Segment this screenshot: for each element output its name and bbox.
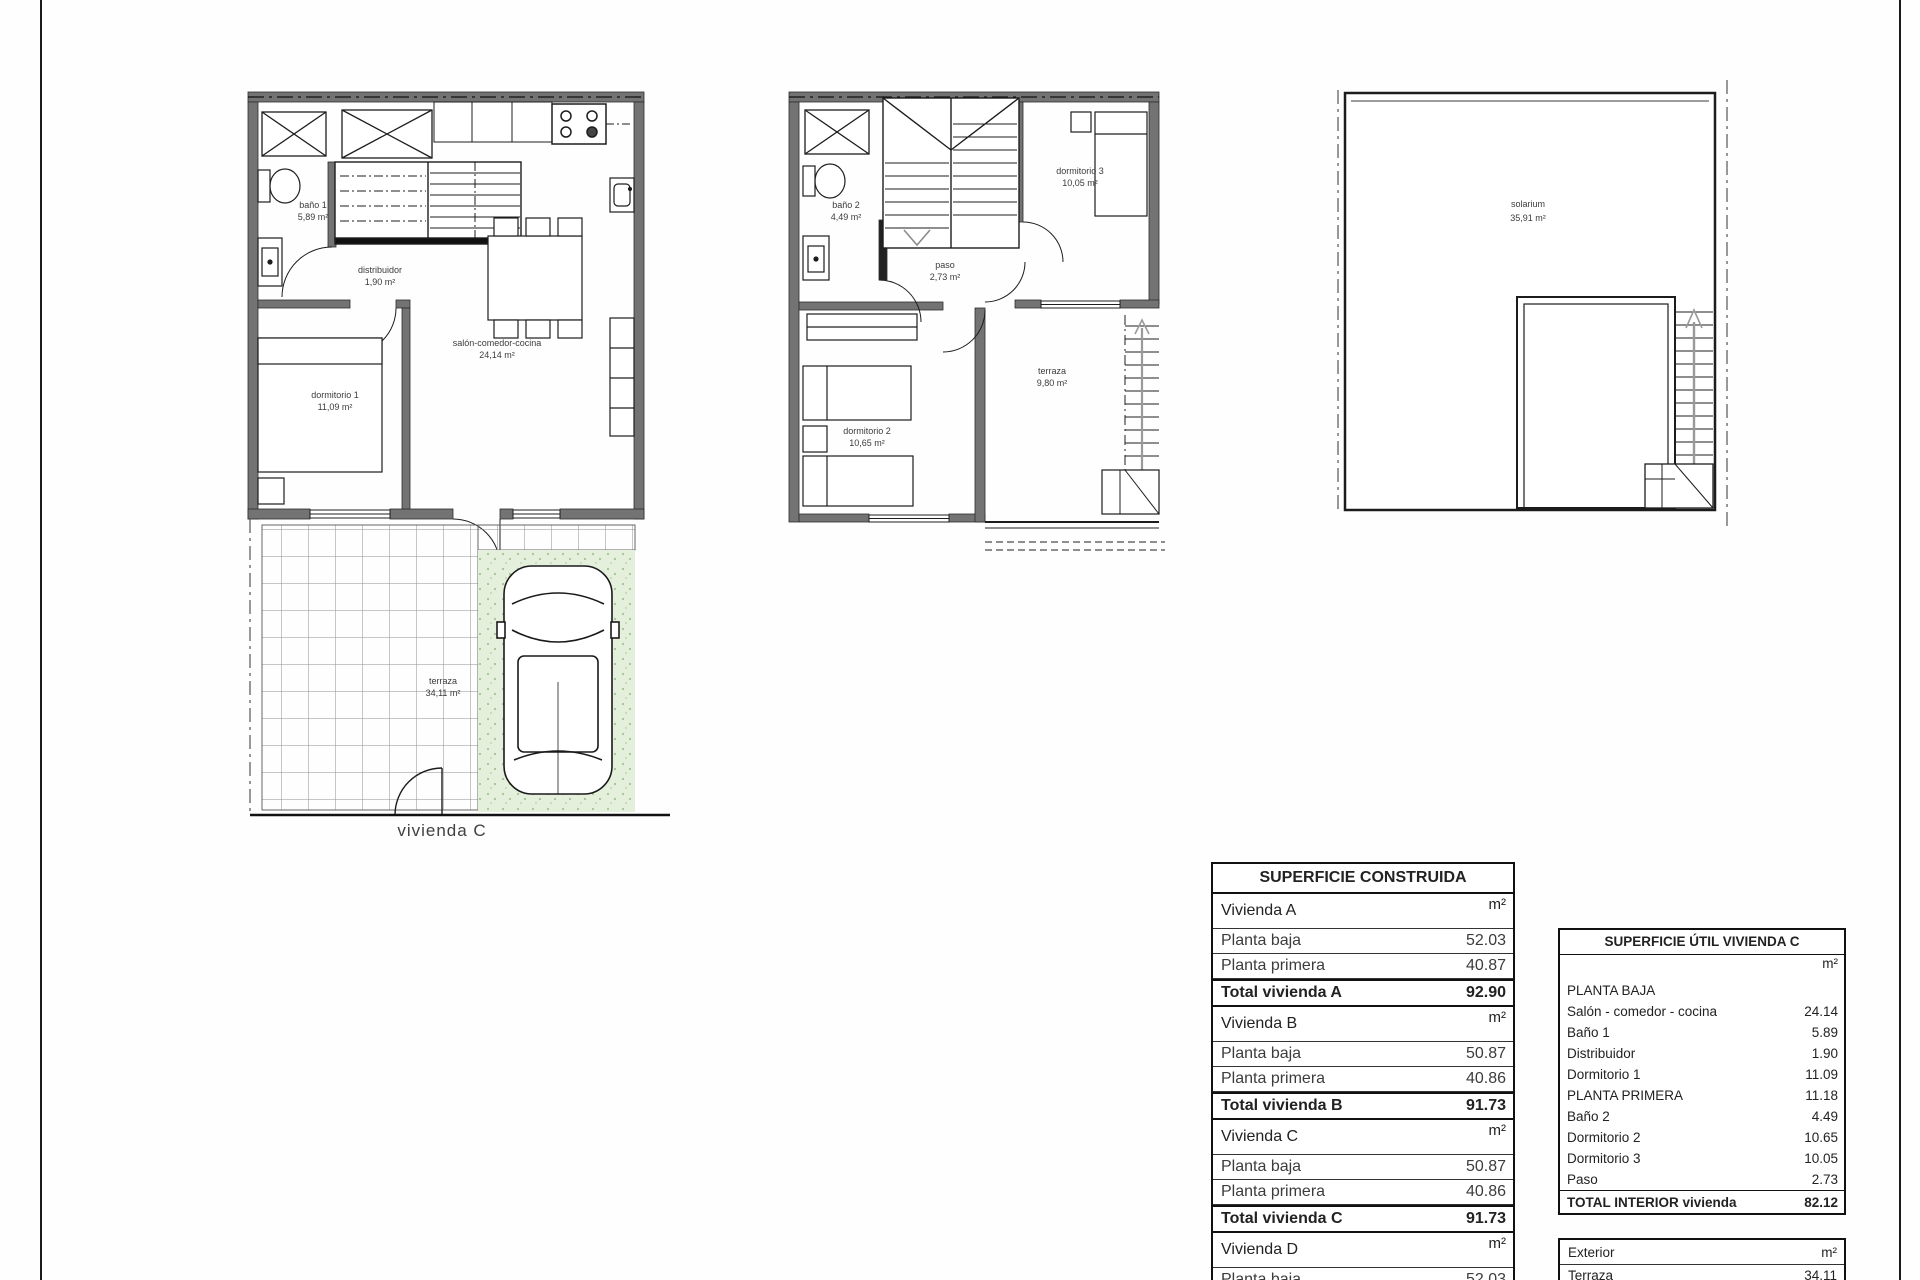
bedroom2-furniture [803,314,917,506]
row-value: 40.87 [1466,957,1506,975]
table-row: Vivienda Bm² [1213,1007,1513,1042]
row-value: 34.11 [1804,1268,1837,1280]
room-area: 10,65 m² [849,438,885,448]
table-row: Planta baja50.87 [1213,1155,1513,1180]
table-row: Dormitorio 210.65 [1560,1127,1844,1148]
table-row: PLANTA BAJA [1560,980,1844,1001]
table-superficie-util: SUPERFICIE ÚTIL VIVIENDA C m² PLANTA BAJ… [1558,928,1846,1215]
row-value: m² [1821,1245,1837,1260]
table-title: SUPERFICIE CONSTRUIDA [1213,864,1513,894]
row-label: Vivienda C [1221,1128,1298,1146]
row-value: 4.49 [1812,1109,1838,1124]
row-label: PLANTA PRIMERA [1567,1088,1683,1103]
row-label: Salón - comedor - cocina [1567,1004,1717,1019]
row-label: Total vivienda C [1221,1210,1343,1228]
row-label: PLANTA BAJA [1567,983,1655,998]
table-row: Vivienda Cm² [1213,1120,1513,1155]
table-row: Dormitorio 310.05 [1560,1148,1844,1169]
row-value: 2.73 [1812,1172,1838,1187]
row-value: 24.14 [1804,1004,1838,1019]
room-area: 5,89 m² [298,212,329,222]
bed-icon [258,338,382,504]
row-label: Vivienda A [1221,902,1296,920]
room-area: 34,11 m² [426,688,461,698]
table-row-total: Total vivienda A92.90 [1213,979,1513,1007]
row-value: 82.12 [1804,1195,1838,1210]
table-row: Salón - comedor - cocina24.14 [1560,1001,1844,1022]
room-area: 10,05 m² [1062,178,1098,188]
table-title: SUPERFICIE ÚTIL VIVIENDA C [1560,930,1844,955]
table-row-total: TOTAL INTERIOR vivienda82.12 [1560,1190,1844,1213]
row-value: m² [1489,1007,1507,1026]
first-floor-plan: baño 2 4,49 m² paso 2,73 m² dormitorio 3… [780,70,1180,590]
room-label: dormitorio 3 [1056,166,1104,176]
room-area: 11,09 m² [318,402,353,412]
row-label: Total vivienda A [1221,984,1342,1002]
row-label: Vivienda D [1221,1241,1298,1259]
table-row: Baño 24.49 [1560,1106,1844,1127]
row-value: 10.65 [1804,1130,1838,1145]
table-row: Terraza34.11 [1560,1265,1844,1280]
row-label: Terraza [1568,1268,1613,1280]
terrace-stairs [1102,315,1159,514]
row-label: Baño 1 [1567,1025,1610,1040]
row-label: Dormitorio 1 [1567,1067,1641,1082]
plan-sheet: { "colors": { "wall": "#737373", "garden… [0,0,1920,1280]
bedroom3-furniture [1071,112,1147,216]
room-label: distribuidor [358,265,402,275]
table-row: Planta primera40.87 [1213,954,1513,979]
room-label: solarium [1511,199,1545,209]
sink-icon [803,236,829,280]
stairs [883,98,1019,248]
table-superficie-construida: SUPERFICIE CONSTRUIDA Vivienda Am² Plant… [1211,862,1515,1280]
sofa-icon [610,318,634,436]
table-row: Exteriorm² [1560,1240,1844,1265]
row-label: Planta primera [1221,1183,1325,1201]
table-row: Planta primera40.86 [1213,1180,1513,1205]
stairs [335,162,521,244]
row-value: 11.18 [1805,1088,1838,1103]
row-label: Dormitorio 2 [1567,1130,1641,1145]
row-value: 40.86 [1466,1183,1506,1201]
table-row: Vivienda Am² [1213,894,1513,929]
row-value: 10.05 [1804,1151,1838,1166]
row-label: Planta baja [1221,1045,1301,1063]
row-value: m² [1489,1120,1507,1139]
table-row-total: Total vivienda B91.73 [1213,1092,1513,1120]
row-value: 52.03 [1466,932,1506,950]
room-area: 4,49 m² [831,212,862,222]
room-label: dormitorio 2 [843,426,891,436]
room-label: salón-comedor-cocina [453,338,542,348]
sheet-right-edge-line [1899,0,1901,1280]
stove-icon [552,104,606,144]
row-label: Planta baja [1221,1271,1301,1280]
room-area: 24,14 m² [479,350,515,360]
ground-floor-plan: baño 1 5,89 m² distribuidor 1,90 m² saló… [200,70,680,860]
table-row: PLANTA PRIMERA11.18 [1560,1085,1844,1106]
row-value: 5.89 [1812,1025,1838,1040]
row-label: Exterior [1568,1245,1615,1260]
row-value: 92.90 [1466,984,1506,1002]
terrace-bottom [985,522,1165,550]
sheet-left-edge-line [40,0,42,1280]
row-value: 40.86 [1466,1070,1506,1088]
room-area: 9,80 m² [1037,378,1068,388]
table-row: Baño 15.89 [1560,1022,1844,1043]
room-label: terraza [429,676,457,686]
room-area: 2,73 m² [930,272,961,282]
row-value: 11.09 [1805,1067,1838,1082]
room-label: dormitorio 1 [311,390,359,400]
row-label: Planta baja [1221,932,1301,950]
sink-icon [258,238,282,286]
row-label: Baño 2 [1567,1109,1610,1124]
table-row: Planta baja52.03 [1213,929,1513,954]
row-value: m² [1489,1233,1507,1252]
row-value: 52.03 [1466,1271,1506,1280]
table-row: Vivienda Dm² [1213,1233,1513,1268]
roof-outline [1345,93,1715,510]
table-row: Planta primera40.86 [1213,1067,1513,1092]
row-label: Planta primera [1221,957,1325,975]
kitchen-counter [434,102,552,142]
room-label: baño 2 [832,200,860,210]
toilet-icon [258,169,300,203]
table-row: Planta baja50.87 [1213,1042,1513,1067]
table-row: m² [1560,955,1844,980]
row-label: TOTAL INTERIOR vivienda [1567,1195,1737,1210]
kitchen-sink-icon [610,178,634,212]
closet-icon [805,110,869,154]
car-icon [497,566,619,794]
toilet-icon [803,164,845,198]
table-row-total: Total vivienda C91.73 [1213,1205,1513,1233]
room-label: paso [935,260,955,270]
room-area: 1,90 m² [365,277,396,287]
table-superficie-util-exterior: Exteriorm² Terraza34.11 [1558,1238,1846,1280]
row-value: 1.90 [1812,1046,1838,1061]
row-label: Total vivienda B [1221,1097,1343,1115]
table-row: Dormitorio 111.09 [1560,1064,1844,1085]
table-row: Paso2.73 [1560,1169,1844,1190]
row-value: 91.73 [1466,1210,1506,1228]
row-label: Planta primera [1221,1070,1325,1088]
row-label: Distribuidor [1567,1046,1635,1061]
plan-caption: vivienda C [397,821,486,840]
row-label: Dormitorio 3 [1567,1151,1641,1166]
table-row: Distribuidor1.90 [1560,1043,1844,1064]
row-value: 91.73 [1466,1097,1506,1115]
row-value: 50.87 [1466,1158,1506,1176]
dining-table [488,218,582,338]
room-area: 35,91 m² [1510,213,1546,223]
solarium-plan: solarium 35,91 m² [1330,80,1750,530]
row-value: 50.87 [1466,1045,1506,1063]
row-label: Planta baja [1221,1158,1301,1176]
table-row: Planta baja52.03 [1213,1268,1513,1280]
row-label: Vivienda B [1221,1015,1297,1033]
room-label: terraza [1038,366,1066,376]
room-label: baño 1 [299,200,327,210]
closet-icon [262,110,432,158]
row-label: Paso [1567,1172,1598,1187]
row-value: m² [1489,894,1507,913]
row-value: m² [1822,955,1838,971]
